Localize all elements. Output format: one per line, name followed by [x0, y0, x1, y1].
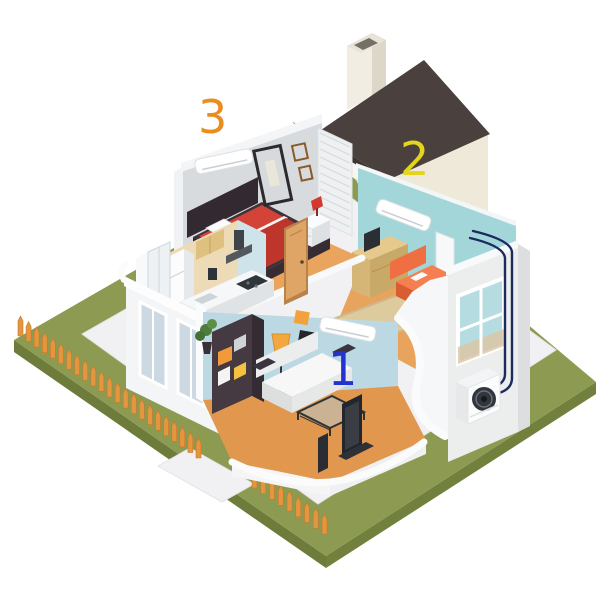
isometric-house-scene: 3 2 1: [0, 0, 600, 600]
speaker: [318, 433, 328, 473]
house-illustration: [0, 0, 600, 600]
coffee-maker: [208, 268, 217, 280]
zone-label-3: 3: [198, 94, 227, 140]
zone-label-2: 2: [400, 136, 429, 182]
interior-door: [284, 217, 308, 305]
exterior-wall-right: [446, 240, 530, 462]
window: [140, 302, 166, 388]
zone-label-1: 1: [328, 346, 357, 392]
cut-edge-left: [121, 264, 126, 280]
